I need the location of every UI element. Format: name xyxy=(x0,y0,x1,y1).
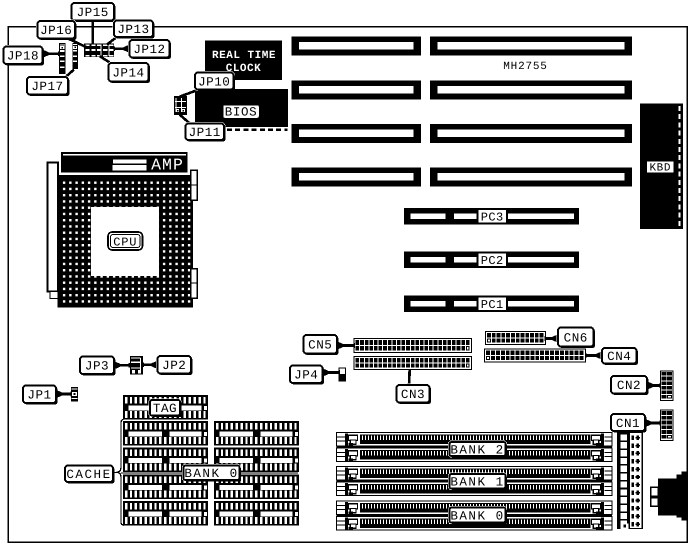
svg-text:AMP: AMP xyxy=(151,156,184,175)
svg-text:CN5: CN5 xyxy=(308,339,332,353)
svg-text:BIOS: BIOS xyxy=(225,106,257,120)
svg-text:BANK 2: BANK 2 xyxy=(450,443,504,457)
svg-text:BANK 0: BANK 0 xyxy=(184,467,238,481)
svg-text:JP15: JP15 xyxy=(77,6,109,20)
svg-text:JP11: JP11 xyxy=(189,126,221,140)
svg-text:JP1: JP1 xyxy=(27,389,51,403)
svg-text:CN3: CN3 xyxy=(401,388,425,402)
svg-text:JP4: JP4 xyxy=(294,369,318,383)
svg-text:BANK 0: BANK 0 xyxy=(450,509,504,523)
svg-text:REAL TIME: REAL TIME xyxy=(212,50,276,62)
svg-text:CACHE: CACHE xyxy=(66,468,111,482)
svg-text:CPU: CPU xyxy=(113,235,137,249)
svg-text:PC1: PC1 xyxy=(481,298,504,312)
svg-text:MH2755: MH2755 xyxy=(503,61,547,73)
svg-text:CN6: CN6 xyxy=(564,331,588,345)
svg-text:JP13: JP13 xyxy=(117,23,149,37)
svg-text:JP14: JP14 xyxy=(112,67,144,81)
svg-text:PC2: PC2 xyxy=(481,254,504,268)
svg-text:CN4: CN4 xyxy=(607,350,631,364)
svg-text:JP18: JP18 xyxy=(7,50,39,64)
svg-text:JP17: JP17 xyxy=(31,80,63,94)
svg-text:CN2: CN2 xyxy=(617,379,641,393)
svg-text:TAG: TAG xyxy=(153,402,177,416)
svg-text:JP12: JP12 xyxy=(133,43,165,57)
svg-text:JP2: JP2 xyxy=(162,359,186,373)
svg-text:BANK 1: BANK 1 xyxy=(450,476,504,490)
svg-text:JP16: JP16 xyxy=(40,24,72,38)
svg-text:CN1: CN1 xyxy=(616,417,640,431)
svg-text:PC3: PC3 xyxy=(481,210,504,224)
svg-text:JP3: JP3 xyxy=(85,360,109,374)
svg-text:KBD: KBD xyxy=(649,163,671,175)
svg-text:JP10: JP10 xyxy=(198,75,230,89)
